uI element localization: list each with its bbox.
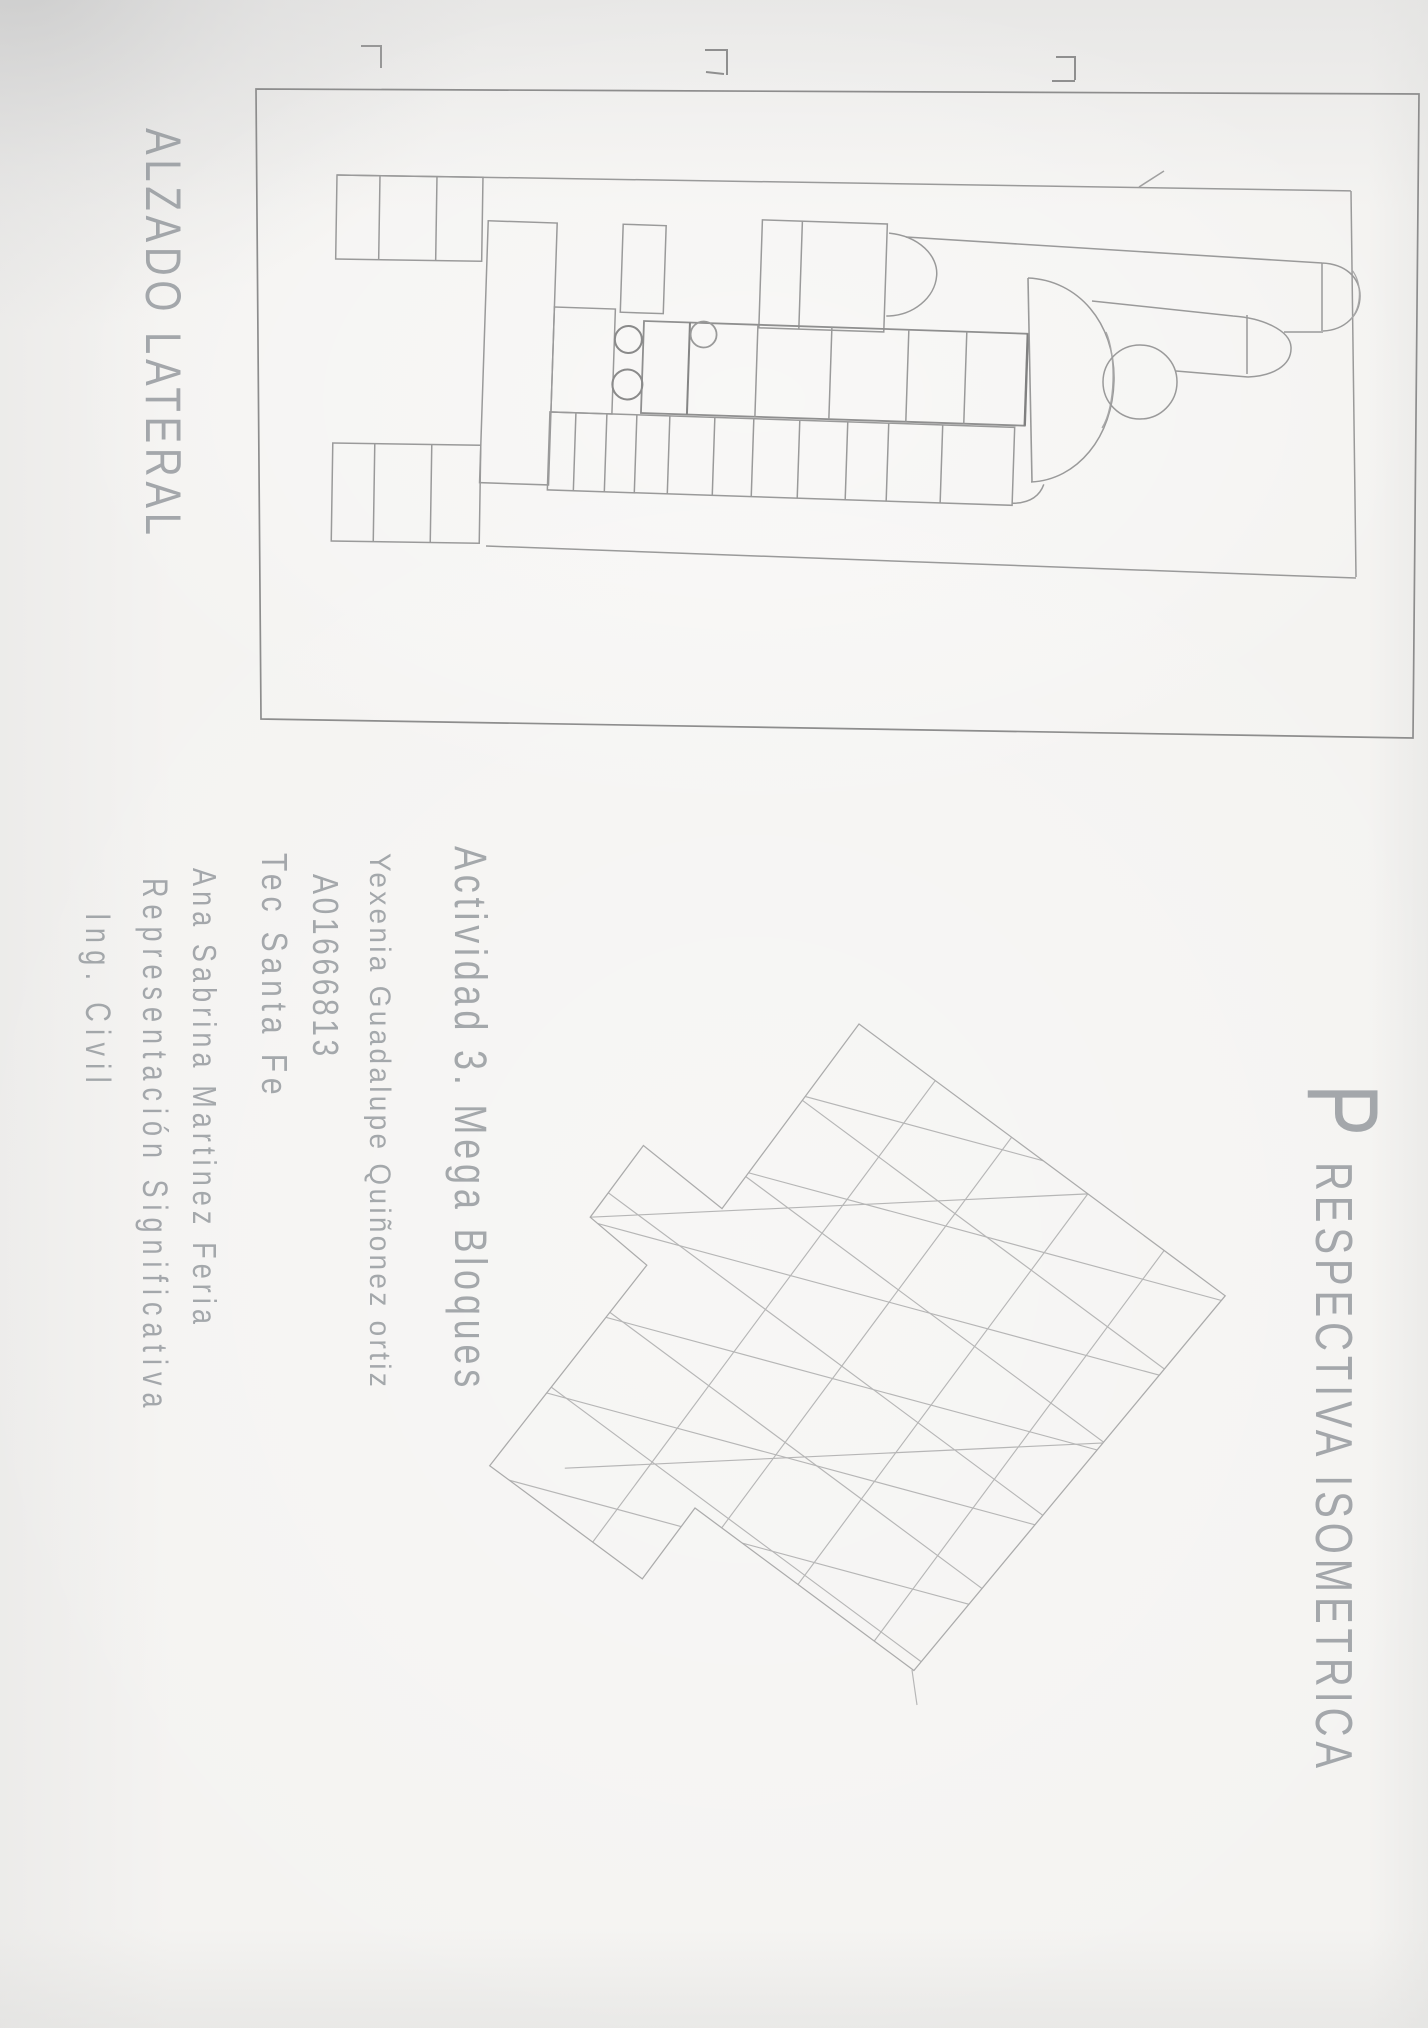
svg-text:Yexenia Guadalupe Quiñonez ort: Yexenia Guadalupe Quiñonez ortiz bbox=[363, 853, 396, 1390]
svg-text:Actividad 3. Mega Bloques: Actividad 3. Mega Bloques bbox=[445, 846, 496, 1392]
svg-text:ALZADO LATERAL: ALZADO LATERAL bbox=[135, 128, 191, 540]
svg-text:Representación Significativa: Representación Significativa bbox=[135, 878, 174, 1415]
svg-text:P: P bbox=[1286, 1084, 1399, 1136]
svg-text:Tec Santa Fe: Tec Santa Fe bbox=[253, 853, 293, 1101]
svg-text:A01666813: A01666813 bbox=[304, 874, 344, 1060]
svg-text:Ing. Civil: Ing. Civil bbox=[78, 913, 117, 1090]
svg-text:Ana Sabrina Martinez Feria: Ana Sabrina Martinez Feria bbox=[185, 868, 223, 1329]
svg-text:RESPECTIVA ISOMETRICA: RESPECTIVA ISOMETRICA bbox=[1305, 1162, 1363, 1773]
